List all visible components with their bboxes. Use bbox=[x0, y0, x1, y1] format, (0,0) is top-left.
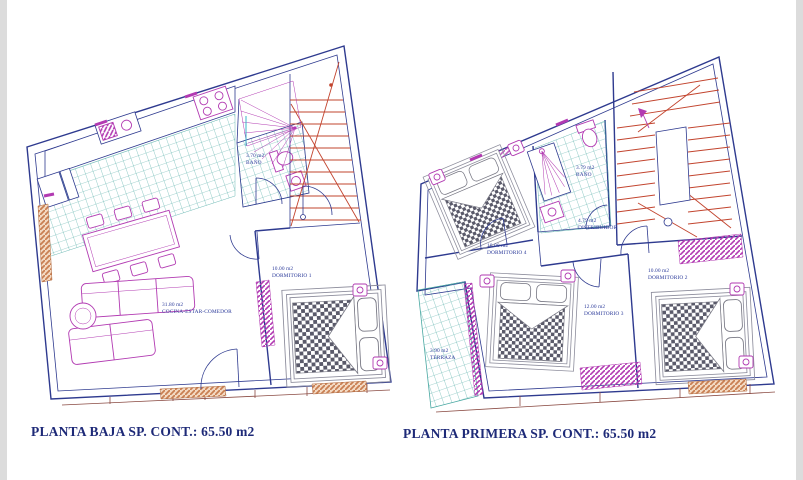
wardrobe bbox=[678, 234, 743, 264]
stair-stringer bbox=[656, 127, 690, 205]
room-label: DORMITORIO 4 bbox=[487, 250, 527, 256]
window-bottom-1 bbox=[160, 386, 226, 399]
room-label: BAÑO bbox=[246, 158, 262, 166]
room-area: 12.00 m2 bbox=[584, 304, 605, 310]
room-label: TERRAZA bbox=[430, 355, 456, 361]
nightstand bbox=[739, 356, 753, 368]
wardrobe bbox=[580, 362, 642, 390]
room-area: 31.80 m2 bbox=[162, 302, 183, 308]
staircase bbox=[617, 78, 732, 237]
room-label: COCINA-ESTAR-COMEDOR bbox=[162, 309, 232, 315]
bathroom: 3.79 m2 BAÑO bbox=[527, 120, 611, 233]
nightstand bbox=[730, 283, 744, 295]
bedroom-2: 10.00 m2 DORMITORIO 2 bbox=[648, 234, 755, 385]
nightstand bbox=[353, 284, 367, 296]
bedroom-door-arc bbox=[230, 235, 259, 259]
nightstand bbox=[480, 275, 494, 287]
room-area: 3.90 m2 bbox=[430, 348, 449, 354]
room-label: DORMITORIO 2 bbox=[648, 275, 688, 281]
nightstand bbox=[561, 270, 575, 282]
bathroom: 3.70 m2 BAÑO bbox=[237, 122, 309, 207]
wardrobe bbox=[256, 280, 275, 347]
bed bbox=[282, 285, 390, 387]
room-area: 10.00 m2 bbox=[648, 268, 669, 274]
caption-planta-primera: PLANTA PRIMERA SP. CONT.: 65.50 m2 bbox=[403, 426, 656, 441]
room-label: DORMITORIO 3 bbox=[584, 311, 624, 317]
room-area: 10.00 m2 bbox=[487, 243, 508, 249]
terraza: 3.90 m2 TERRAZA bbox=[418, 282, 483, 408]
partition-wall bbox=[237, 99, 239, 143]
floorplan-canvas: 3.70 m2 BAÑO bbox=[0, 0, 803, 480]
room-label: DISTRIBUIDOR bbox=[578, 225, 618, 231]
room-area: 4.79 m2 bbox=[578, 218, 597, 224]
bedroom-3: 12.00 m2 DORMITORIO 3 bbox=[480, 270, 642, 390]
stair-arrowhead bbox=[638, 108, 647, 118]
right-edge-band bbox=[796, 0, 803, 480]
window-bottom-2 bbox=[312, 381, 367, 394]
floorplan-image: 3.70 m2 BAÑO bbox=[0, 0, 803, 480]
plan-planta-baja: 3.70 m2 BAÑO bbox=[27, 46, 391, 405]
door-pivot bbox=[301, 215, 306, 220]
room-area: 10.00 m2 bbox=[272, 266, 293, 272]
door-arc-dorm2 bbox=[621, 226, 647, 255]
room-label: DORMITORIO 1 bbox=[272, 273, 312, 279]
distribuidor: 4.79 m2 DISTRIBUIDOR bbox=[573, 218, 649, 287]
room-area: 3.70 m2 bbox=[246, 153, 265, 159]
room-area: 3.79 m2 bbox=[576, 165, 595, 171]
left-edge-band bbox=[0, 0, 7, 480]
window-bottom bbox=[688, 379, 747, 394]
bed bbox=[651, 287, 754, 384]
caption-planta-baja: PLANTA BAJA SP. CONT.: 65.50 m2 bbox=[31, 424, 255, 439]
room-label: BAÑO bbox=[576, 170, 592, 178]
plan-planta-primera: 3.90 m2 TERRAZA 10.00 m2 DORMITORIO 4 bbox=[417, 57, 775, 412]
newel bbox=[664, 218, 672, 226]
round-chair bbox=[70, 303, 96, 329]
bedroom-1: 10.00 m2 DORMITORIO 1 bbox=[230, 228, 390, 387]
nightstand bbox=[373, 357, 387, 369]
door-arc-dorm3 bbox=[573, 262, 599, 287]
bed bbox=[486, 273, 579, 371]
corner-dot bbox=[329, 83, 333, 87]
